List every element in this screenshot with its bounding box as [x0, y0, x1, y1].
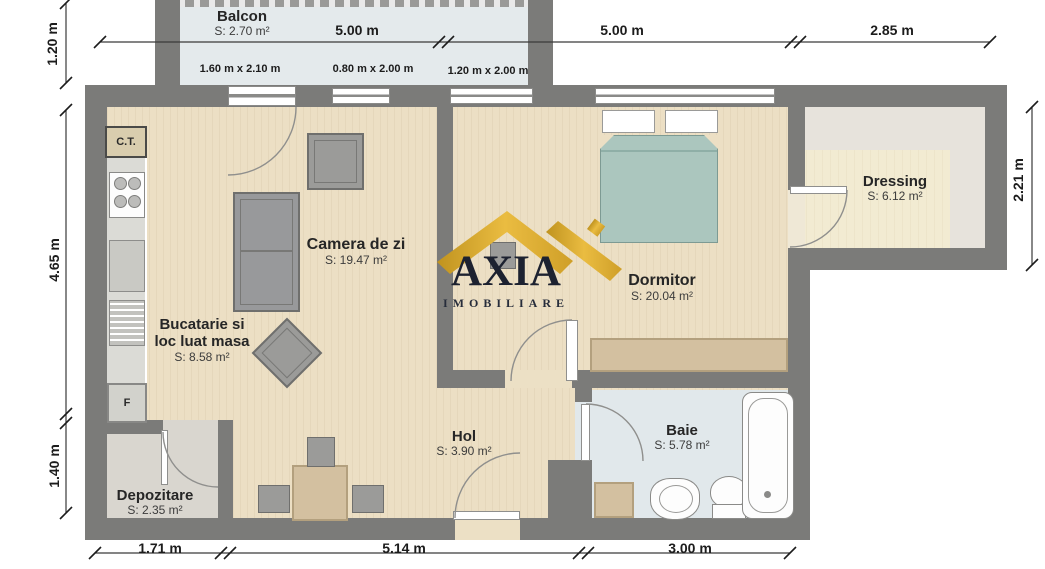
window-label-living: 0.80 m x 2.00 m: [318, 63, 428, 75]
window-hall: [450, 88, 533, 104]
burner-icon: [114, 177, 127, 190]
room-area: S: 6.12 m²: [835, 190, 955, 204]
room-label-dormitor: Dormitor S: 20.04 m²: [602, 272, 722, 304]
room-label-dressing: Dressing S: 6.12 m²: [835, 173, 955, 204]
room-label-hol: Hol S: 3.90 m²: [404, 428, 524, 459]
wall-bath-left-lower: [548, 460, 592, 518]
room-name-line2: loc luat masa: [142, 333, 262, 350]
exterior-wall-right-upper: [985, 85, 1007, 270]
room-name: Baie: [622, 422, 742, 439]
toilet-tank: [712, 504, 746, 519]
room-area: S: 2.70 m²: [182, 25, 302, 39]
dim-left-lower: 1.40 m: [46, 426, 62, 506]
bedroom-dresser: [590, 338, 788, 372]
room-area: S: 8.58 m²: [142, 351, 262, 365]
dining-table: [292, 465, 348, 521]
room-label-depozitare: Depozitare S: 2.35 m²: [95, 487, 215, 518]
bathtub: [742, 392, 794, 519]
dim-bottom-3: 3.00 m: [650, 540, 730, 556]
room-label-balcon: Balcon S: 2.70 m²: [182, 8, 302, 39]
window-bedroom: [595, 88, 775, 104]
dim-bottom-1: 1.71 m: [120, 540, 200, 556]
dim-bottom-2: 5.14 m: [364, 540, 444, 556]
floor-plan: C.T. F: [0, 0, 1045, 569]
dining-chair-right: [352, 485, 384, 513]
room-name: Balcon: [182, 8, 302, 25]
bed-sheet-fold: [601, 150, 717, 152]
balcony-wall-left: [155, 0, 180, 85]
sofa-cushion-divider: [240, 250, 293, 252]
wall-bedroom-bath: [572, 370, 788, 388]
room-area: S: 2.35 m²: [95, 504, 215, 518]
bedroom-door-gap: [505, 370, 572, 388]
window-label-balcony-door: 1.60 m x 2.10 m: [185, 63, 295, 75]
window-livingroom: [332, 88, 390, 104]
bed-corner-right: [704, 135, 718, 149]
boiler-box: C.T.: [105, 126, 147, 158]
boiler-label: C.T.: [116, 136, 136, 148]
dim-right: 2.21 m: [1010, 140, 1026, 220]
room-name: Depozitare: [95, 487, 215, 504]
room-area: S: 20.04 m²: [602, 290, 722, 304]
room-name: Camera de zi: [296, 236, 416, 254]
dim-top-1: 5.00 m: [317, 22, 397, 38]
fridge-label: F: [124, 397, 131, 409]
balcony-railing: [155, 0, 553, 7]
bedroom-door-leaf: [566, 320, 578, 381]
exterior-wall-bottom-left: [85, 518, 455, 540]
dim-top-3: 2.85 m: [852, 22, 932, 38]
sofa: [233, 192, 300, 312]
entry-door-leaf: [453, 511, 520, 520]
window-label-hall: 1.20 m x 2.00 m: [433, 65, 543, 77]
room-name: Dressing: [835, 173, 955, 190]
dim-top-2: 5.00 m: [582, 22, 662, 38]
wall-storage-right: [218, 420, 233, 518]
room-label-baie: Baie S: 5.78 m²: [622, 422, 742, 453]
bed-corner-left: [600, 135, 614, 149]
storage-door-gap: [163, 420, 218, 434]
room-area: S: 19.47 m²: [296, 254, 416, 268]
armchair-cushion: [314, 140, 357, 183]
room-area: S: 5.78 m²: [622, 439, 742, 453]
bath-door-leaf: [581, 404, 590, 461]
room-name: Hol: [404, 428, 524, 445]
entry-door-gap: [455, 518, 520, 540]
dish-rack: [109, 300, 145, 346]
storage-door-leaf: [161, 430, 168, 485]
wall-living-hall: [437, 107, 453, 372]
bed-pillow-left: [602, 110, 655, 133]
bed: [600, 135, 718, 243]
sofa-cushions: [240, 199, 293, 305]
exterior-wall-bottom-right: [520, 518, 810, 540]
balcony-door-window: [228, 86, 296, 106]
room-label-camera-de-zi: Camera de zi S: 19.47 m²: [296, 236, 416, 268]
burner-icon: [128, 177, 141, 190]
wall-bedroom-hall-left: [437, 370, 505, 388]
wall-dressing-left: [788, 107, 805, 190]
room-area: S: 3.90 m²: [404, 445, 524, 459]
dining-chair-left: [258, 485, 290, 513]
room-label-bucatarie: Bucatarie si loc luat masa S: 8.58 m²: [142, 316, 262, 364]
burner-icon: [114, 195, 127, 208]
room-name-line1: Bucatarie si: [142, 316, 262, 333]
watermark-subtitle: IMOBILIARE: [434, 296, 578, 311]
bed-pillow-right: [665, 110, 718, 133]
exterior-wall-top: [85, 85, 1007, 107]
exterior-wall-left: [85, 85, 107, 540]
dim-left-main: 4.65 m: [46, 220, 62, 300]
dim-left-balcony: 1.20 m: [44, 4, 60, 84]
washing-machine: [594, 482, 634, 518]
dressing-door-gap: [788, 190, 805, 248]
burner-icon: [128, 195, 141, 208]
watermark-brand: AXIA: [438, 250, 574, 293]
fridge-box: F: [107, 383, 147, 423]
armchair: [307, 133, 364, 190]
bathtub-drain: [764, 491, 771, 498]
wall-bath-left-upper: [575, 388, 592, 402]
sink-basin: [659, 485, 693, 513]
stove: [109, 172, 145, 218]
room-name: Dormitor: [602, 272, 722, 290]
dressing-wall-bottom: [788, 248, 1007, 270]
sink: [650, 478, 700, 520]
kitchen-cabinet: [109, 240, 145, 292]
dining-chair-top: [307, 437, 335, 467]
